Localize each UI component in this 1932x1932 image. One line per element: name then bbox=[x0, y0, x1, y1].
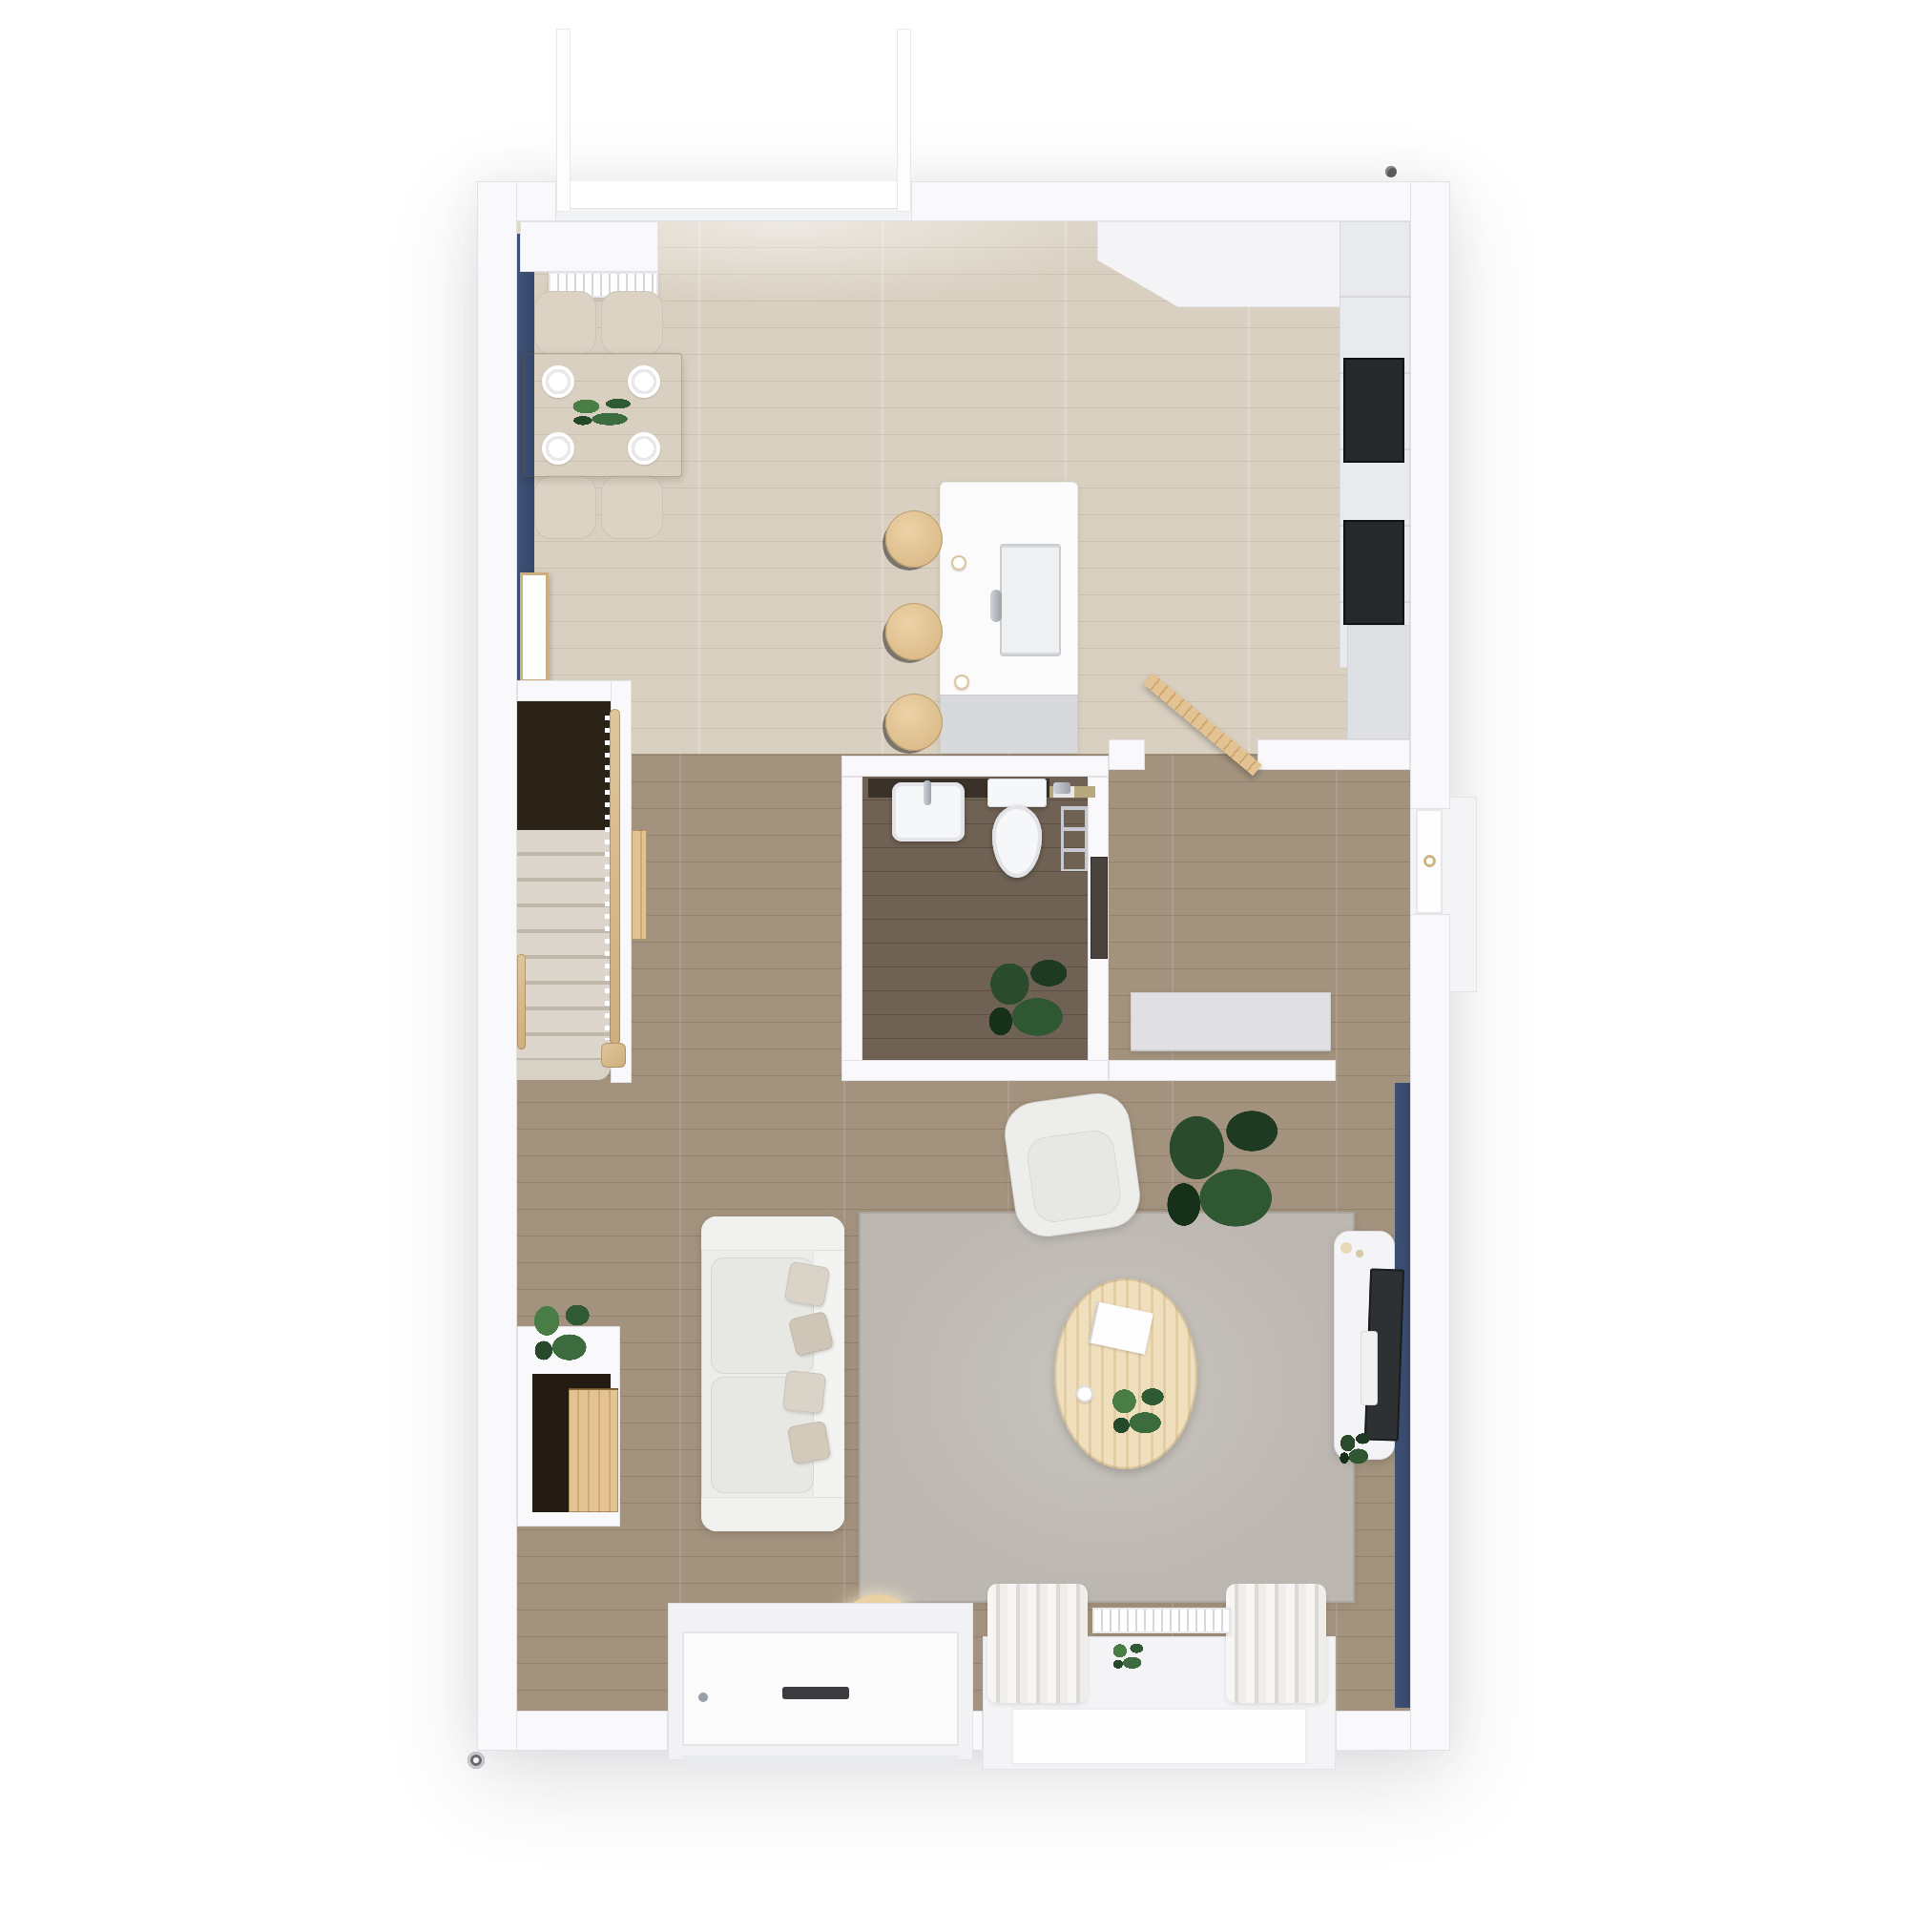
sofa bbox=[701, 1216, 844, 1531]
table-plants bbox=[561, 393, 645, 431]
dining-chair bbox=[601, 475, 663, 539]
drain-pipe bbox=[467, 1752, 485, 1769]
soundbar bbox=[1361, 1331, 1378, 1405]
coffee-cup bbox=[954, 675, 969, 690]
console-cabinet bbox=[569, 1388, 618, 1512]
entrance-door-wreath bbox=[1423, 855, 1436, 867]
wc-wall-left bbox=[841, 777, 862, 1081]
bay-window-glazing bbox=[1011, 1708, 1307, 1765]
toilet-roll-holder bbox=[1053, 782, 1070, 794]
island-faucet bbox=[990, 590, 1002, 622]
wall-top-right bbox=[911, 181, 1450, 221]
tv-unit-plant bbox=[1334, 1427, 1378, 1471]
sill-plant bbox=[1107, 1638, 1151, 1674]
stair-bottom-step bbox=[517, 1059, 611, 1080]
porch-step bbox=[682, 1755, 959, 1764]
sofa-armrest bbox=[701, 1497, 844, 1531]
letterbox bbox=[782, 1687, 849, 1699]
curtain-right bbox=[1226, 1584, 1326, 1703]
bar-stool bbox=[885, 603, 943, 660]
hall-wall-top-a bbox=[1109, 739, 1145, 770]
place-setting bbox=[628, 365, 660, 398]
place-setting bbox=[542, 365, 574, 398]
built-in-oven bbox=[1343, 358, 1404, 463]
armchair bbox=[1001, 1090, 1144, 1241]
storage-bench bbox=[1131, 992, 1331, 1051]
patio-door-leaf bbox=[897, 29, 911, 212]
dining-chair bbox=[534, 291, 596, 355]
wc-toilet-cistern bbox=[987, 779, 1047, 807]
hall-wall-bottom bbox=[1109, 1060, 1336, 1081]
floor-plan-stage bbox=[0, 0, 1932, 1932]
wc-door bbox=[1091, 857, 1108, 959]
console-plant bbox=[523, 1293, 603, 1373]
wc-foliage-plant bbox=[973, 945, 1088, 1054]
bar-stool bbox=[885, 694, 943, 751]
bar-stool bbox=[885, 510, 943, 568]
coffee-table-plant bbox=[1102, 1379, 1176, 1444]
dining-chair bbox=[534, 475, 596, 539]
window-radiator bbox=[1092, 1608, 1231, 1633]
pillow bbox=[784, 1261, 831, 1308]
leaning-wall-frame bbox=[520, 572, 549, 682]
decor-object bbox=[1340, 1242, 1352, 1254]
wall-right-upper bbox=[1410, 181, 1450, 809]
curtain-left bbox=[987, 1584, 1088, 1703]
tall-cabinet bbox=[1347, 625, 1410, 739]
door-handle bbox=[698, 1693, 708, 1702]
place-setting bbox=[628, 432, 660, 465]
building-footprint bbox=[477, 181, 1450, 1751]
patio-door-threshold bbox=[556, 208, 911, 221]
coffee-cup bbox=[1076, 1385, 1093, 1402]
pillow bbox=[787, 1421, 831, 1465]
wall-left bbox=[477, 181, 517, 1751]
stair-handrail bbox=[610, 709, 620, 1045]
wall-right-lower bbox=[1410, 914, 1450, 1751]
sofa-armrest bbox=[701, 1216, 844, 1251]
pillow bbox=[782, 1370, 826, 1414]
wc-wall-top bbox=[841, 756, 1109, 777]
patio-door-leaf bbox=[556, 29, 571, 212]
under-stair-door bbox=[632, 830, 647, 940]
wall-handrail bbox=[517, 954, 526, 1049]
black-cooktop bbox=[1343, 520, 1404, 625]
armchair-cushion bbox=[1025, 1128, 1124, 1225]
hall-wall-top-b bbox=[1257, 739, 1410, 770]
corner-door-pin bbox=[1385, 166, 1397, 177]
dining-chair bbox=[601, 291, 663, 355]
wc-basin-tap bbox=[924, 780, 931, 805]
stair-treads bbox=[517, 830, 611, 1059]
island-sink bbox=[1000, 544, 1061, 656]
towel-rail bbox=[1061, 806, 1088, 871]
newel-post bbox=[601, 1043, 626, 1068]
wc-wall-bottom bbox=[841, 1060, 1109, 1081]
place-setting bbox=[542, 432, 574, 465]
island-base-shelf bbox=[940, 695, 1078, 754]
chimney-bump bbox=[520, 221, 658, 272]
stair-dark-landing bbox=[517, 701, 611, 830]
monstera-plant bbox=[1145, 1088, 1307, 1255]
coffee-cup bbox=[951, 555, 966, 571]
